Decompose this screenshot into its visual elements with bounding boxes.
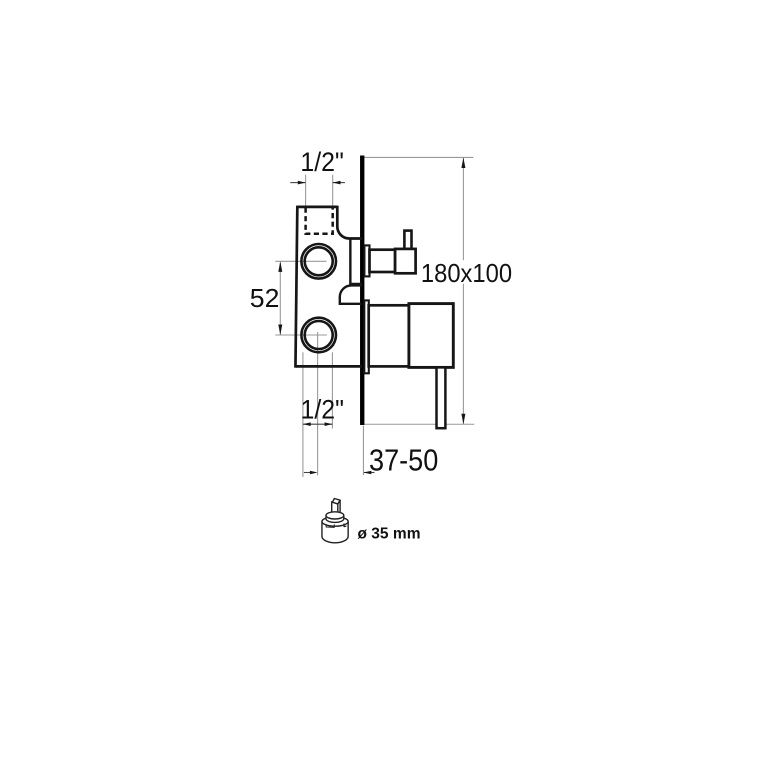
svg-text:1/2": 1/2" [301, 395, 344, 425]
svg-text:ø 35 mm: ø 35 mm [358, 526, 421, 543]
svg-text:180x100: 180x100 [421, 258, 512, 288]
svg-text:52: 52 [250, 283, 280, 313]
svg-text:37-50: 37-50 [369, 443, 438, 477]
svg-text:1/2": 1/2" [300, 147, 343, 177]
